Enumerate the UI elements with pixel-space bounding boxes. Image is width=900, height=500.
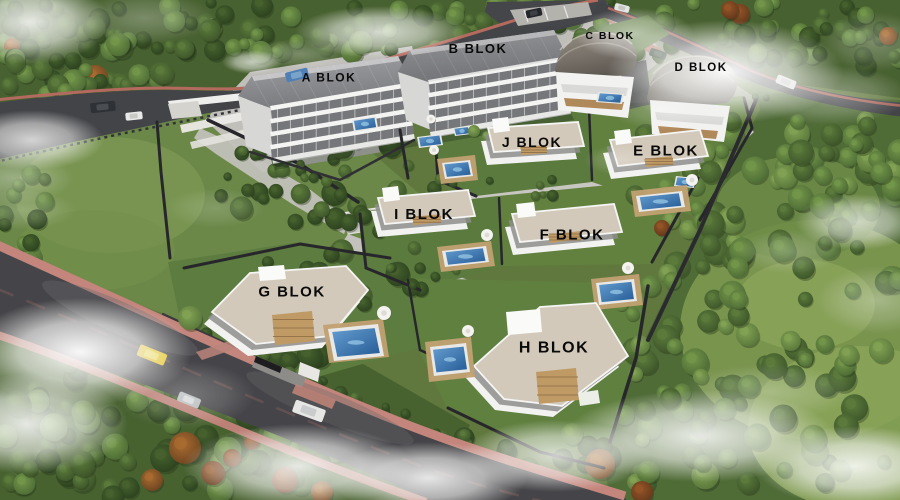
svg-text:C BLOK: C BLOK — [585, 30, 634, 42]
svg-text:B BLOK: B BLOK — [449, 41, 508, 56]
svg-text:F BLOK: F BLOK — [540, 227, 605, 244]
svg-text:D BLOK: D BLOK — [674, 62, 727, 74]
svg-text:I BLOK: I BLOK — [394, 206, 454, 223]
svg-text:A BLOK: A BLOK — [302, 71, 357, 85]
svg-text:E BLOK: E BLOK — [633, 143, 699, 160]
svg-text:G BLOK: G BLOK — [258, 284, 325, 301]
svg-text:J BLOK: J BLOK — [502, 134, 562, 150]
svg-text:H BLOK: H BLOK — [519, 340, 589, 357]
